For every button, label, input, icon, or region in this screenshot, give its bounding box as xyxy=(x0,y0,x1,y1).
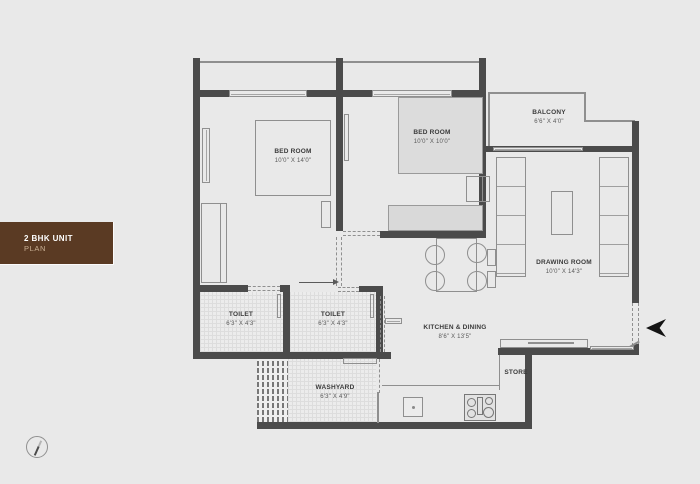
wardrobe xyxy=(201,203,227,283)
room-label-balcony: BALCONY 6'6" X 4'0" xyxy=(532,108,566,127)
washyard-divider xyxy=(377,392,379,423)
entrance-arrow-icon xyxy=(646,319,666,337)
sink-drain xyxy=(412,406,415,409)
wardrobe-door-line xyxy=(220,203,221,283)
wall xyxy=(257,422,532,429)
wardrobe xyxy=(388,205,483,231)
burner xyxy=(485,397,493,405)
room-label-drawing-room: DRAWING ROOM 10'0" X 14'3" xyxy=(536,258,592,277)
dining-chair xyxy=(467,243,487,263)
kitchen-boundary xyxy=(380,296,385,352)
wall xyxy=(525,355,532,429)
wall xyxy=(193,58,200,359)
unit-subtitle: PLAN xyxy=(24,244,113,253)
mirror xyxy=(344,114,349,161)
wall xyxy=(307,90,372,97)
burner xyxy=(483,407,494,418)
service-shaft-hatch xyxy=(257,359,288,422)
balcony-parapet xyxy=(488,92,490,147)
tv xyxy=(528,342,574,344)
wall xyxy=(283,292,290,352)
opening xyxy=(343,231,380,236)
wall xyxy=(193,285,248,292)
window xyxy=(202,128,210,183)
sliding-door-arrow xyxy=(299,282,333,283)
window xyxy=(372,90,452,97)
dining-chair xyxy=(467,271,487,291)
bedside-table-line xyxy=(482,176,483,202)
room-label-washyard: WASHYARD 6'3" X 4'9" xyxy=(316,383,355,402)
kitchen-platform-edge xyxy=(382,385,500,386)
toilet-door-opening xyxy=(248,286,280,291)
room-label-bedroom-2: BED ROOM 10'0" X 10'0" xyxy=(413,128,450,147)
north-compass-icon xyxy=(26,436,48,458)
center-table xyxy=(551,191,573,235)
bedside-table xyxy=(466,176,490,202)
unit-title-tag: 2 BHK UNIT PLAN xyxy=(0,222,114,265)
toilet-door-leaf xyxy=(370,294,374,318)
wall xyxy=(380,231,486,238)
sliding-door-arrowhead xyxy=(333,279,339,285)
wall xyxy=(336,58,343,231)
room-label-kitchen-dining: KITCHEN & DINING 8'6" X 13'5" xyxy=(423,323,486,342)
window xyxy=(590,346,634,350)
window xyxy=(493,147,583,151)
dresser xyxy=(321,201,331,228)
divider-unit xyxy=(487,249,496,266)
sofa xyxy=(599,157,629,277)
wall xyxy=(280,285,290,292)
burner xyxy=(467,409,476,418)
room-label-toilet-1: TOILET 6'3" X 4'3" xyxy=(226,310,255,329)
balcony-parapet xyxy=(584,92,586,122)
room-label-toilet-2: TOILET 6'3" X 4'3" xyxy=(318,310,347,329)
floor-plan-page: 2 BHK UNIT PLAN xyxy=(0,0,700,484)
balcony-parapet xyxy=(584,120,635,122)
burner xyxy=(467,398,476,407)
wall xyxy=(193,90,229,97)
wall xyxy=(632,121,639,303)
wall xyxy=(452,90,486,97)
washing-shelf xyxy=(343,358,377,364)
unit-title: 2 BHK UNIT xyxy=(24,234,113,243)
sofa xyxy=(496,157,526,277)
window xyxy=(229,90,307,97)
compass-needle xyxy=(34,440,42,455)
dining-chair xyxy=(425,245,445,265)
balcony-parapet xyxy=(489,92,586,94)
room-label-store: STORE xyxy=(504,368,527,378)
toilet-door-leaf xyxy=(277,294,281,318)
divider-unit xyxy=(487,271,496,288)
wash-basin xyxy=(385,318,402,324)
dining-chair xyxy=(425,271,445,291)
room-label-bedroom-1: BED ROOM 10'0" X 14'0" xyxy=(274,147,311,166)
stove-center xyxy=(477,397,483,415)
